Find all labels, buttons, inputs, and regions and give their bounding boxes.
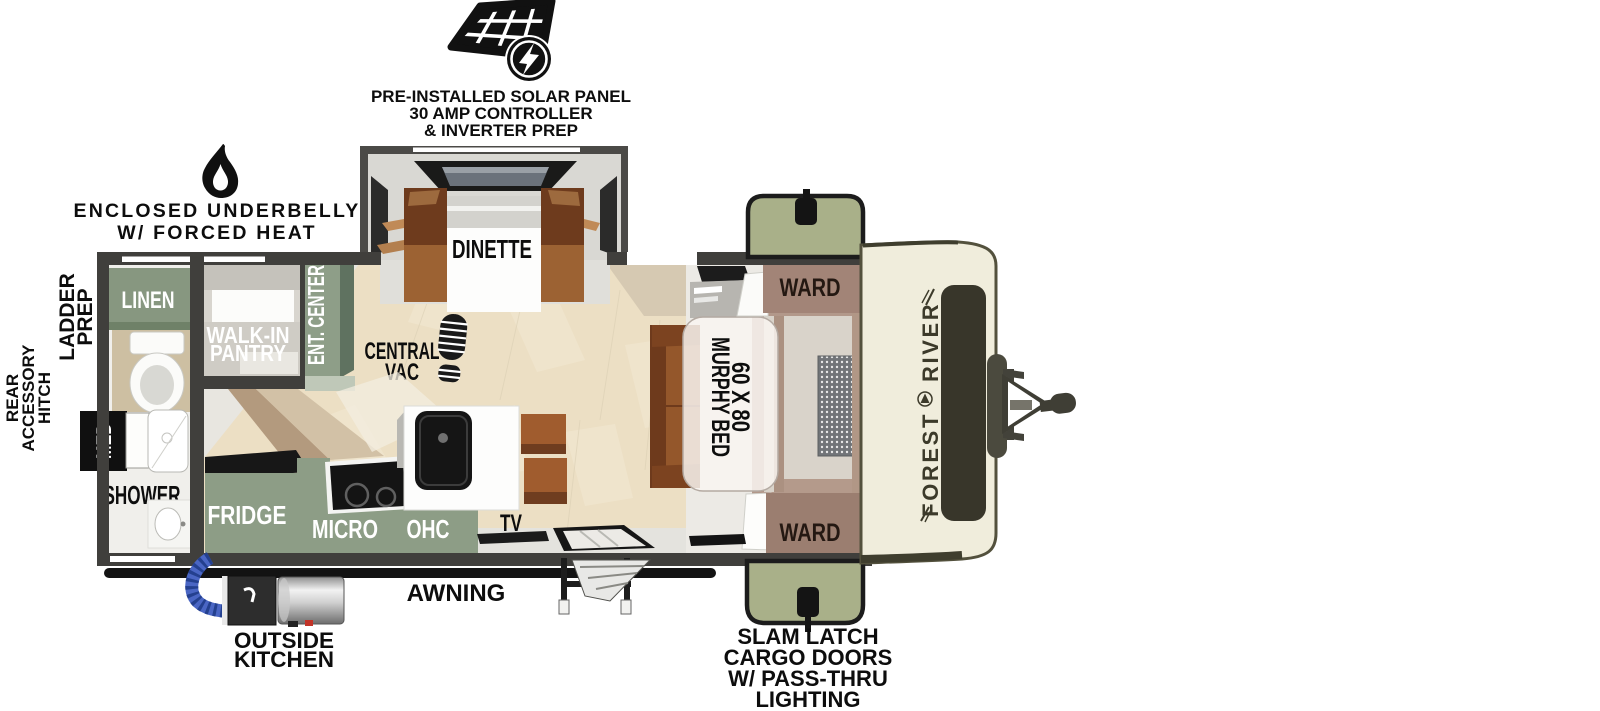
- svg-text:FRIDGE: FRIDGE: [208, 500, 287, 530]
- svg-text:AWNING: AWNING: [407, 580, 506, 607]
- svg-text:DINETTE: DINETTE: [452, 234, 532, 264]
- svg-text:KITCHEN: KITCHEN: [234, 647, 334, 672]
- svg-text:ENCLOSED UNDERBELLY: ENCLOSED UNDERBELLY: [73, 200, 360, 222]
- svg-text:MURPHY BED: MURPHY BED: [706, 337, 734, 457]
- svg-text:HITCH: HITCH: [35, 372, 54, 424]
- svg-text:TV: TV: [500, 510, 522, 537]
- svg-text:& INVERTER PREP: & INVERTER PREP: [424, 121, 578, 140]
- svg-text:RIVER: RIVER: [918, 302, 943, 382]
- svg-text:LINEN: LINEN: [122, 287, 175, 314]
- svg-text:FOREST: FOREST: [918, 412, 943, 517]
- svg-text:WARD: WARD: [780, 519, 841, 547]
- svg-text:PANTRY: PANTRY: [210, 340, 286, 366]
- svg-text:PREP: PREP: [74, 288, 97, 345]
- svg-text:LIGHTING: LIGHTING: [755, 687, 860, 711]
- svg-text:MICRO: MICRO: [312, 514, 378, 544]
- svg-text:OHC: OHC: [407, 514, 450, 544]
- svg-text:W/ FORCED HEAT: W/ FORCED HEAT: [117, 222, 316, 244]
- svg-text:ENT. CENTER: ENT. CENTER: [303, 265, 329, 365]
- svg-text:WARD: WARD: [780, 274, 841, 302]
